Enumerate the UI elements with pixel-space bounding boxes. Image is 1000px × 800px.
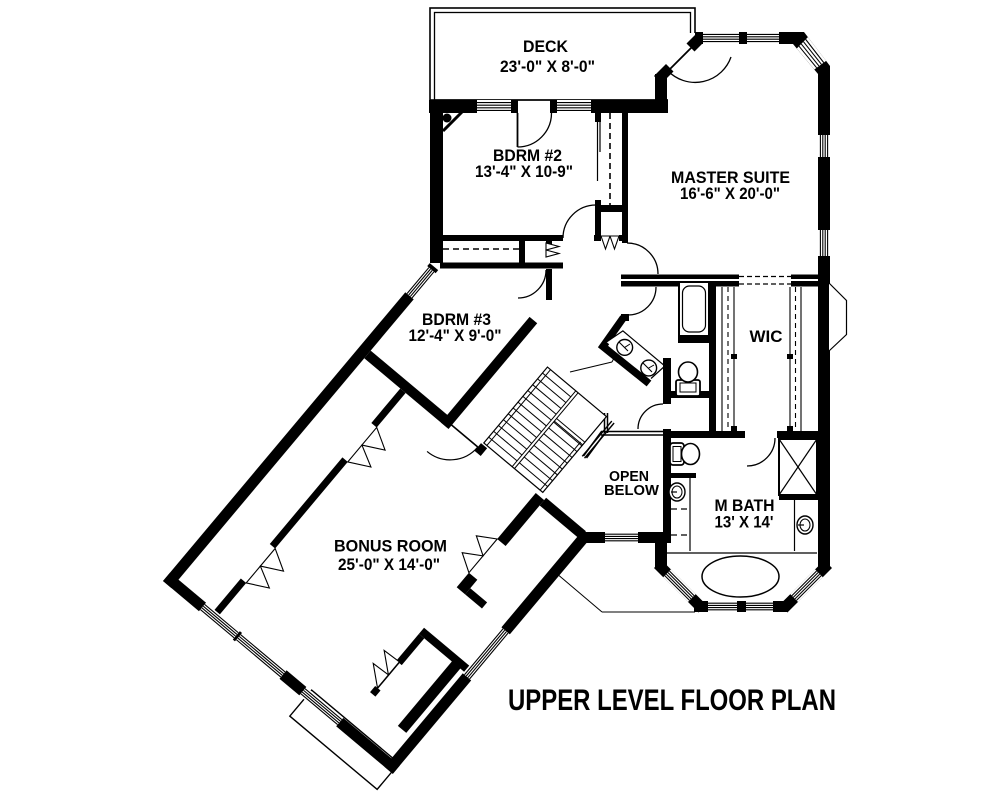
svg-text:BONUS ROOM: BONUS ROOM bbox=[334, 538, 447, 556]
svg-text:M BATH: M BATH bbox=[715, 497, 775, 515]
svg-text:BELOW: BELOW bbox=[604, 483, 659, 499]
svg-text:16'-6" X 20'-0": 16'-6" X 20'-0" bbox=[680, 185, 780, 203]
svg-text:13'-4" X 10-9": 13'-4" X 10-9" bbox=[475, 163, 573, 181]
svg-text:DECK: DECK bbox=[523, 38, 568, 56]
svg-text:WIC: WIC bbox=[750, 328, 783, 346]
svg-text:UPPER LEVEL FLOOR PLAN: UPPER LEVEL FLOOR PLAN bbox=[508, 684, 836, 717]
svg-text:23'-0" X 8'-0": 23'-0" X 8'-0" bbox=[500, 58, 595, 76]
svg-text:13' X 14': 13' X 14' bbox=[715, 514, 774, 532]
svg-text:25'-0" X 14'-0": 25'-0" X 14'-0" bbox=[338, 556, 440, 574]
svg-text:12'-4" X 9'-0": 12'-4" X 9'-0" bbox=[409, 327, 502, 345]
